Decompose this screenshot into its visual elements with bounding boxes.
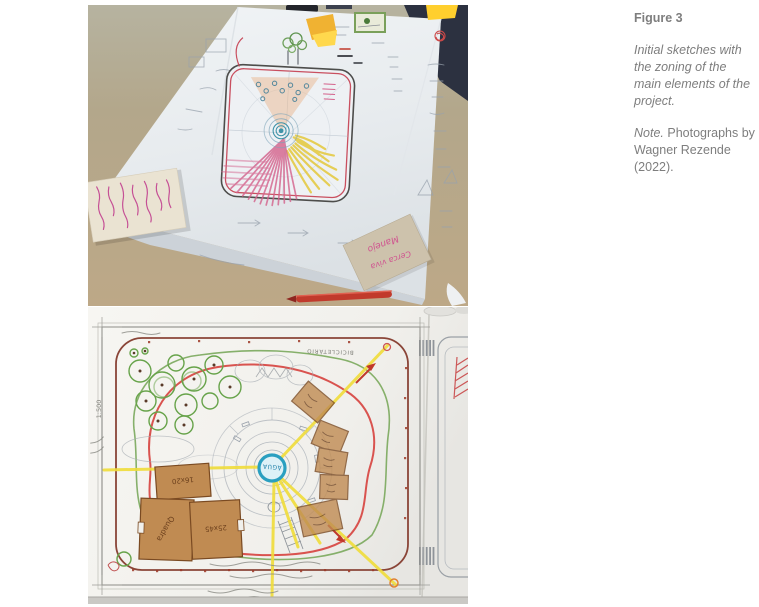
mini-photo-green-frame <box>355 13 385 32</box>
kraft-block-quadra: Quadra <box>137 498 194 561</box>
top-photo-scene: Manejo Cerca viva <box>88 5 468 306</box>
figure-description: Initial sketches with the zoning of the … <box>634 42 756 110</box>
photo-bottom-siteplan: 16x20 Quadra 25x45 <box>88 307 468 604</box>
water-label: ÁGUA <box>262 462 282 470</box>
note-prefix: Note. <box>634 126 664 140</box>
sticky-note-top-right <box>426 5 458 20</box>
floor-strip <box>88 597 468 604</box>
kraft-block-25x45: 25x45 <box>190 500 246 560</box>
figure-3-area: Manejo Cerca viva <box>0 0 759 607</box>
kraft-block-16x20: 16x20 <box>155 463 211 500</box>
site-plan-scene: 16x20 Quadra 25x45 <box>88 307 468 604</box>
scale-label: 1:500 <box>95 400 103 419</box>
figure-caption: Figure 3 Initial sketches with the zonin… <box>634 10 756 191</box>
figure-label: Figure 3 <box>634 10 756 27</box>
figure-note: Note. Photographs by Wagner Rezende (202… <box>634 125 756 176</box>
water-circle: ÁGUA <box>259 455 285 481</box>
photo-top-sketch: Manejo Cerca viva <box>88 5 468 306</box>
